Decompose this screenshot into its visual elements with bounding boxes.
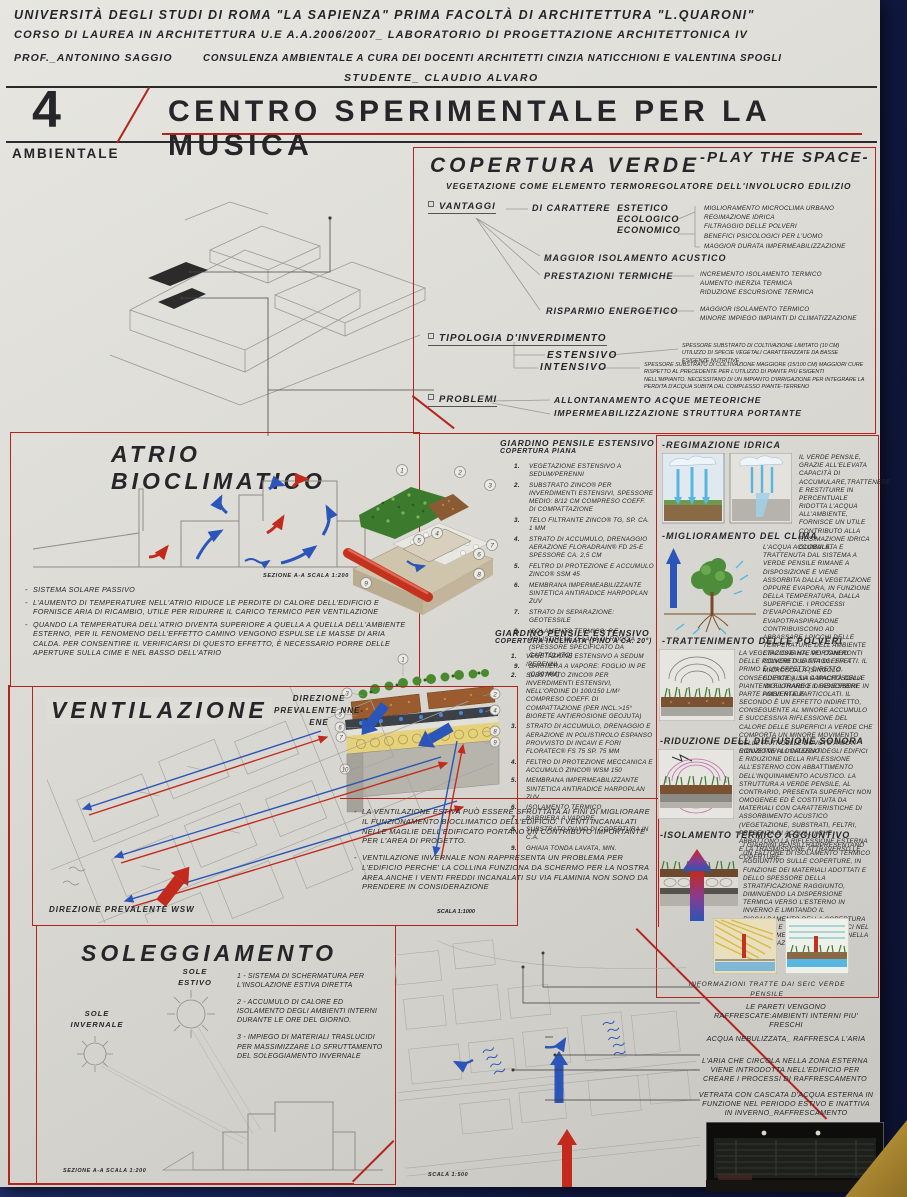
board-number: 4 <box>32 84 61 136</box>
caratteri-effetti-list: MIGLIORAMENTO MICROCLIMA URBANOREGIMAZIO… <box>704 205 869 242</box>
layer-item: MEMBRANA IMPERMEABILIZZANTE SINTETICA AN… <box>514 582 654 607</box>
effetto-item: FILTRAGGIO DELLE POLVERI <box>704 223 869 231</box>
photo-scene: UNIVERSITÀ DEGLI STUDI DI ROMA "LA SAPIE… <box>0 0 907 1197</box>
layer-item: FELTRO DI PROTEZIONE E ACCUMULO ZINCO® S… <box>514 563 654 579</box>
student-name: STUDENTE_ CLAUDIO ALVARO <box>344 72 870 84</box>
bottom-edge-red-line <box>8 1183 354 1185</box>
university-line: UNIVERSITÀ DEGLI STUDI DI ROMA "LA SAPIE… <box>14 8 870 22</box>
giardino-inclinata-subtitle: COPERTURA INCLINATA (FINO A CA. 20°) <box>495 638 657 645</box>
title-underline <box>162 133 862 135</box>
effetto-item: REGIMAZIONE IDRICA <box>704 214 869 222</box>
giardino-piana-subtitle: COPERTURA PIANA <box>500 448 656 455</box>
dust-retention-illustration <box>659 649 735 721</box>
site-plan-drawing <box>395 925 700 1187</box>
layer-item: VEGETAZIONE ESTENSIVO A SEDUM/PERENNI <box>514 463 654 479</box>
giardino-inclinata-title: GIARDINO PENSILE ESTENSIVO <box>495 628 657 638</box>
problemi-label: PROBLEMI <box>428 394 497 407</box>
intensivo-text: SPESSORE SUBSTRATO DI COLTIVAZIONE MAGGI… <box>644 362 866 391</box>
wind-direction-ne-label: DIREZIONE PREVALENTE NNE-ENE <box>273 693 365 729</box>
soleggiamento-panel: SOLEGGIAMENTO SOLE ESTIVO SOLE INVERNALE… <box>36 925 396 1185</box>
svg-text:1: 1 <box>401 657 404 663</box>
carattere-item: ECOLOGICO <box>617 214 681 224</box>
svg-text:1: 1 <box>400 468 404 475</box>
benefit-title-isolamento: -ISOLAMENTO TERMICO AGGIUNTIVO <box>660 830 850 840</box>
problema-item: ALLONTANAMENTO ACQUE METEORICHE <box>554 395 802 405</box>
benefit-title-polveri: -TRATTENIMENTO DELLE POLVERI <box>662 636 843 646</box>
thermal-insulation-illustration <box>658 843 740 925</box>
ventilation-notes: LA VENTILAZIONE ESTIVA PUÒ ESSERE SFRUTT… <box>354 807 652 892</box>
benefit-title-regimazione: -REGIMAZIONE IDRICA <box>662 440 781 450</box>
soleggiamento-note: 3 - IMPIEGO DI MATERIALI TRASLUCIDI PER … <box>237 1033 389 1060</box>
layer-item: TELO FILTRANTE ZINCO® TG, SP. CA. 1 MM <box>514 517 654 533</box>
ventilation-note: VENTILAZIONE INVERNALE NON RAPPRESENTA U… <box>354 853 652 892</box>
green-roof-benefits-panel: -REGIMAZIONE IDRICA IL VERDE PENSI <box>656 435 879 998</box>
site-plan-scale: SCALA 1:500 <box>428 1172 468 1178</box>
professor-name: PROF._ANTONINO SAGGIO <box>14 52 173 64</box>
tipologia-label: TIPOLOGIA D'INVERDIMENTO <box>428 333 607 346</box>
carattere-label: DI CARATTERE <box>532 203 610 213</box>
effetto-item: BENEFICI PSICOLOGICI PER L'UOMO <box>704 233 869 241</box>
sound-reduction-illustration <box>658 749 734 819</box>
problema-item: IMPERMEABILIZZAZIONE STRUTTURA PORTANTE <box>554 408 802 418</box>
acustico-label: MAGGIOR ISOLAMENTO ACUSTICO <box>544 253 727 263</box>
copertura-title: COPERTURA VERDE <box>430 154 700 178</box>
tree-evaporation-illustration <box>660 544 760 640</box>
flat-roof-detail-illustration: 123456789 <box>333 447 498 629</box>
svg-text:4: 4 <box>435 531 439 538</box>
svg-text:7: 7 <box>490 543 494 550</box>
ventilation-note: LA VENTILAZIONE ESTIVA PUÒ ESSERE SFRUTT… <box>354 807 652 846</box>
board-header: UNIVERSITÀ DEGLI STUDI DI ROMA "LA SAPIE… <box>14 8 870 84</box>
risparmio-item: MINORE IMPIEGO IMPIANTI DI CLIMATIZZAZIO… <box>700 315 865 323</box>
square-bullet <box>428 394 434 400</box>
problemi-list: ALLONTANAMENTO ACQUE METEORICHEIMPERMEAB… <box>554 395 802 421</box>
presentation-board: UNIVERSITÀ DEGLI STUDI DI ROMA "LA SAPIE… <box>0 0 880 1187</box>
soleggiamento-caption: SEZIONE A-A SCALA 1:200 <box>63 1168 146 1174</box>
left-edge-red-line <box>8 685 10 1184</box>
summer-sun-icon <box>167 990 215 1038</box>
layer-item: STRATO DI ACCUMULO, DRENAGGIO E AERAZION… <box>511 723 653 756</box>
course-line: CORSO DI LAUREA IN ARCHITETTURA U.E A.A.… <box>14 29 870 41</box>
soleggiamento-title: SOLEGGIAMENTO <box>81 940 337 967</box>
benefit-title-sonora: -RIDUZIONE DELL DIFFUSIONE SONORA <box>660 736 864 746</box>
sources-note: INFORMAZIONI TRATTE DAI SEIC VERDE PENSI… <box>687 980 847 1000</box>
benefit-title-clima: -MIGLIORAMENTO DEL CLIMA <box>662 531 818 541</box>
band-top-rule <box>6 86 877 88</box>
svg-text:5: 5 <box>417 538 421 545</box>
risparmio-label: RISPARMIO ENERGETICO <box>546 306 678 316</box>
ventilation-notes-panel: LA VENTILAZIONE ESTIVA PUÒ ESSERE SFRUTT… <box>340 798 659 927</box>
wind-direction-wsw-label: DIREZIONE PREVALENTE WSW <box>49 905 195 914</box>
consultants-line: CONSULENZA AMBIENTALE A CURA DEI DOCENTI… <box>203 53 782 64</box>
vantaggi-label: VANTAGGI <box>428 201 496 214</box>
callout-external-air: L'ARIA CHE CIRCOLA NELLA ZONA ESTERNA VI… <box>694 1056 876 1083</box>
durata-note: MAGGIOR DURATA IMPERMEABILIZZAZIONE <box>704 243 874 251</box>
summer-sun-sketch <box>713 918 777 974</box>
intensivo-label: INTENSIVO <box>540 362 607 373</box>
copertura-subtitle: VEGETAZIONE COME ELEMENTO TERMOREGOLATOR… <box>446 181 852 191</box>
layer-item: SUBSTRATO ZINCO® PER INVERDIMENTI ESTENS… <box>514 482 654 515</box>
prestazione-item: AUMENTO INERZIA TERMICA <box>700 280 865 288</box>
prestazione-item: INCREMENTO ISOLAMENTO TERMICO <box>700 271 865 279</box>
square-bullet <box>428 201 434 207</box>
soleggiamento-note: 2 - ACCUMULO DI CALORE ED ISOLAMENTO DEG… <box>237 998 389 1025</box>
airflow-arrows <box>550 1051 577 1187</box>
carattere-item: ECONOMICO <box>617 225 681 235</box>
layer-item: SUBSTRATO ZINCO® PER INVERDIMENTI ESTENS… <box>511 672 653 721</box>
svg-text:2: 2 <box>457 470 462 477</box>
callout-water-wall-glazing: VETRATA CON CASCATA D'ACQUA ESTERNA IN F… <box>698 1090 874 1117</box>
layer-item: FELTRO DI PROTEZIONE MECCANICA E ACCUMUL… <box>511 759 653 775</box>
layer-item: VEGETAZIONE ESTENSIVO A SEDUM /PERENNI <box>511 653 653 669</box>
giardino-piana-title: GIARDINO PENSILE ESTENSIVO <box>500 438 656 448</box>
soleggiamento-note: 1 - SISTEMA DI SCHERMATURA PER L'INSOLAZ… <box>237 972 389 990</box>
title-slash <box>116 87 150 144</box>
callout-nebulized-water: ACQUA NEBULIZZATA_ RAFFRESCA L'ARIA <box>706 1034 866 1043</box>
estensivo-label: ESTENSIVO <box>547 350 618 361</box>
square-bullet <box>428 333 434 339</box>
effetto-item: MIGLIORAMENTO MICROCLIMA URBANO <box>704 205 869 213</box>
callout-walls-cooling: LE PARETI VENGONO RAFFRESCATE:AMBIENTI I… <box>700 1002 872 1029</box>
svg-text:9: 9 <box>364 581 368 588</box>
water-wall-photo <box>706 1122 884 1192</box>
carattere-item: ESTETICO <box>617 203 681 213</box>
copertura-verde-panel: COPERTURA VERDE VEGETAZIONE COME ELEMENT… <box>413 147 876 434</box>
svg-text:6: 6 <box>477 552 481 559</box>
axonometric-massing-drawing <box>90 150 435 440</box>
risparmio-item: MAGGIOR ISOLAMENTO TERMICO <box>700 306 865 314</box>
ventilazione-title: VENTILAZIONE <box>47 697 272 724</box>
prestazioni-label: PRESTAZIONI TERMICHE <box>544 271 673 281</box>
svg-text:8: 8 <box>477 572 481 579</box>
svg-text:3: 3 <box>488 483 492 490</box>
green-roof-sketch <box>785 918 849 974</box>
water-cycle-illustration <box>662 453 792 525</box>
prestazione-item: RIDUZIONE ESCURSIONE TERMICA <box>700 289 865 297</box>
prestazioni-list: INCREMENTO ISOLAMENTO TERMICOAUMENTO INE… <box>700 271 865 299</box>
layer-item: STRATO DI SEPARAZIONE: GEOTESSILE <box>514 609 654 625</box>
layer-item: STRATO DI ACCUMULO, DRENAGGIO AERAZIONE … <box>514 536 654 561</box>
soleggiamento-notes: 1 - SISTEMA DI SCHERMATURA PER L'INSOLAZ… <box>237 972 389 1069</box>
caratteri-list: ESTETICOECOLOGICOECONOMICO <box>617 203 681 236</box>
risparmio-list: MAGGIOR ISOLAMENTO TERMICOMINORE IMPIEGO… <box>700 306 865 324</box>
